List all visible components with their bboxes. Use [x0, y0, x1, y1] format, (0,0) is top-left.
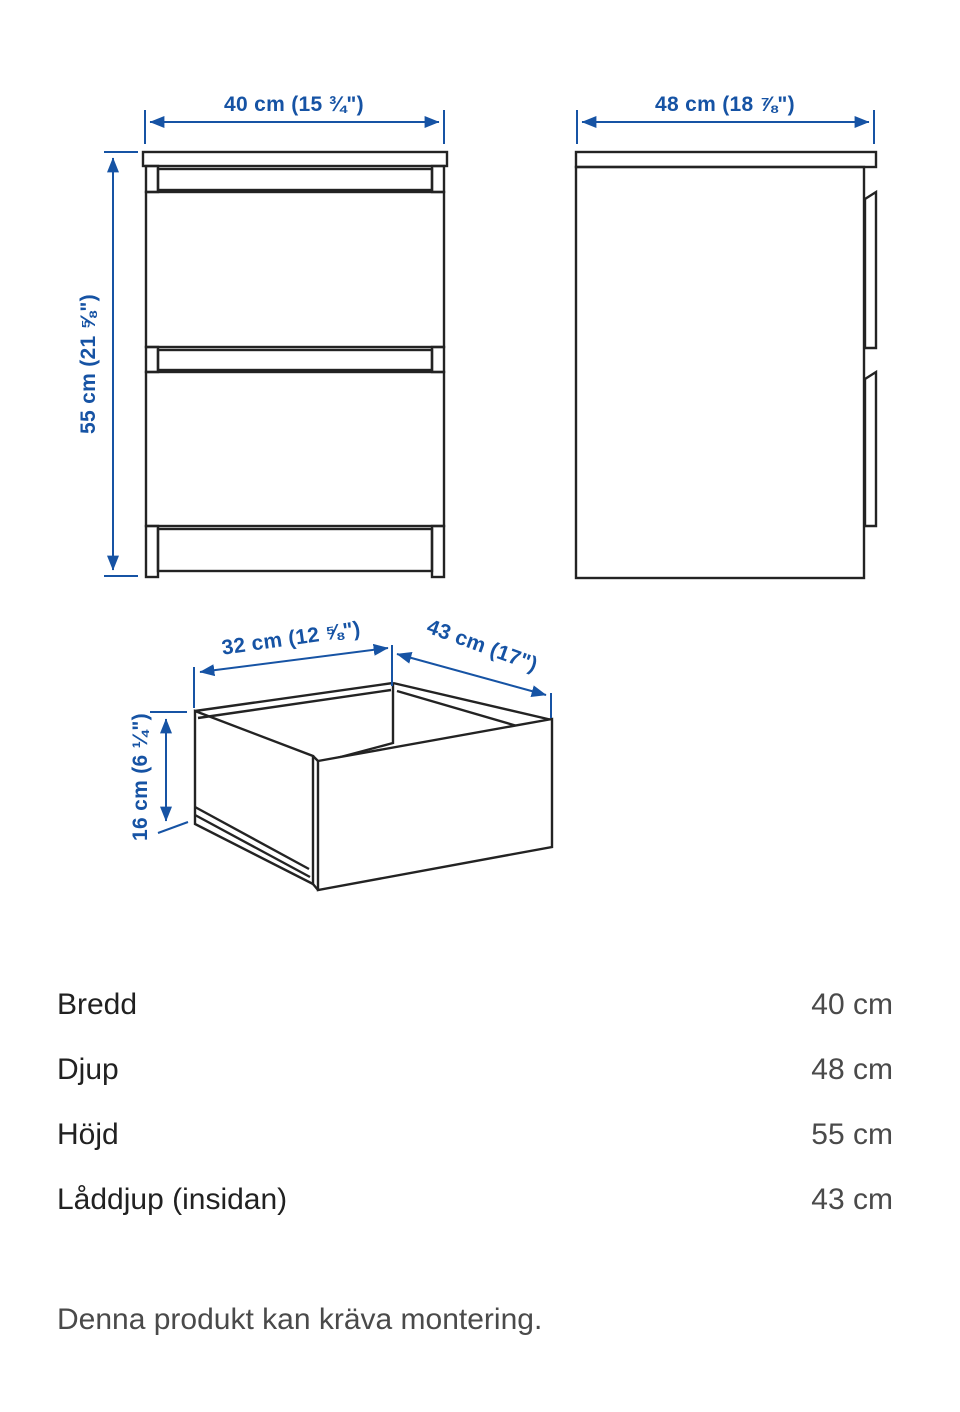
drawer-height-dimension: 16 cm (6 ¼")	[129, 712, 188, 841]
front-top-rail	[158, 169, 432, 190]
assembly-note: Denna produkt kan kräva montering.	[57, 1302, 893, 1338]
drawer-back-top-outer-edge	[195, 683, 393, 711]
measurement-row: Djup 48 cm	[57, 1037, 893, 1102]
measurement-row: Låddjup (insidan) 43 cm	[57, 1167, 893, 1232]
front-right-leg	[432, 526, 444, 577]
front-drawer-2	[146, 372, 444, 526]
side-drawer-1-edge	[865, 192, 876, 348]
drawer-side-face	[195, 711, 313, 884]
measurements-table: Bredd 40 cm Djup 48 cm Höjd 55 cm Låddju…	[57, 972, 893, 1232]
front-height-dimension: 55 cm (21 ⅝")	[77, 152, 138, 576]
drawer-height-label: 16 cm (6 ¼")	[129, 713, 152, 841]
drawer-right-top-outer-edge	[393, 683, 552, 720]
front-mid-left-stile	[146, 347, 158, 372]
dimension-tick	[158, 822, 188, 833]
dimension-diagram: 40 cm (15 ¾") 55 cm (21 ⅝") 48 cm (18 ⅞"…	[0, 0, 960, 948]
front-top-left-stile	[146, 166, 158, 192]
measurement-label: Bredd	[57, 987, 137, 1023]
side-body-panel	[576, 167, 864, 578]
measurement-value: 43 cm	[811, 1182, 893, 1218]
front-top-right-stile	[432, 166, 444, 192]
front-left-leg	[146, 526, 158, 577]
front-view-drawing	[143, 152, 447, 577]
measurement-row: Höjd 55 cm	[57, 1102, 893, 1167]
front-bottom-rail	[158, 529, 432, 571]
drawer-back-top-inner-edge	[198, 690, 391, 718]
side-view-drawing	[576, 152, 876, 578]
front-drawer-1	[146, 192, 444, 347]
measurement-label: Höjd	[57, 1117, 119, 1153]
drawer-depth-label: 43 cm (17")	[424, 615, 541, 676]
measurement-label: Låddjup (insidan)	[57, 1182, 287, 1218]
side-depth-dimension: 48 cm (18 ⅞")	[577, 93, 874, 144]
measurement-value: 48 cm	[811, 1052, 893, 1088]
measurement-label: Djup	[57, 1052, 119, 1088]
front-width-label: 40 cm (15 ¾")	[224, 93, 364, 116]
front-mid-rail	[158, 350, 432, 370]
drawer-front-face	[318, 719, 552, 890]
product-dimensions-page: 40 cm (15 ¾") 55 cm (21 ⅝") 48 cm (18 ⅞"…	[0, 0, 960, 1412]
side-drawer-2-edge	[865, 372, 876, 526]
front-height-label: 55 cm (21 ⅝")	[77, 294, 100, 434]
measurement-row: Bredd 40 cm	[57, 972, 893, 1037]
front-top-panel	[143, 152, 447, 166]
side-depth-label: 48 cm (18 ⅞")	[655, 93, 795, 116]
drawer-3d-drawing	[195, 683, 552, 890]
measurement-value: 55 cm	[811, 1117, 893, 1153]
side-top-panel	[576, 152, 876, 167]
front-mid-right-stile	[432, 347, 444, 372]
front-width-dimension: 40 cm (15 ¾")	[145, 93, 444, 144]
measurement-value: 40 cm	[811, 987, 893, 1023]
